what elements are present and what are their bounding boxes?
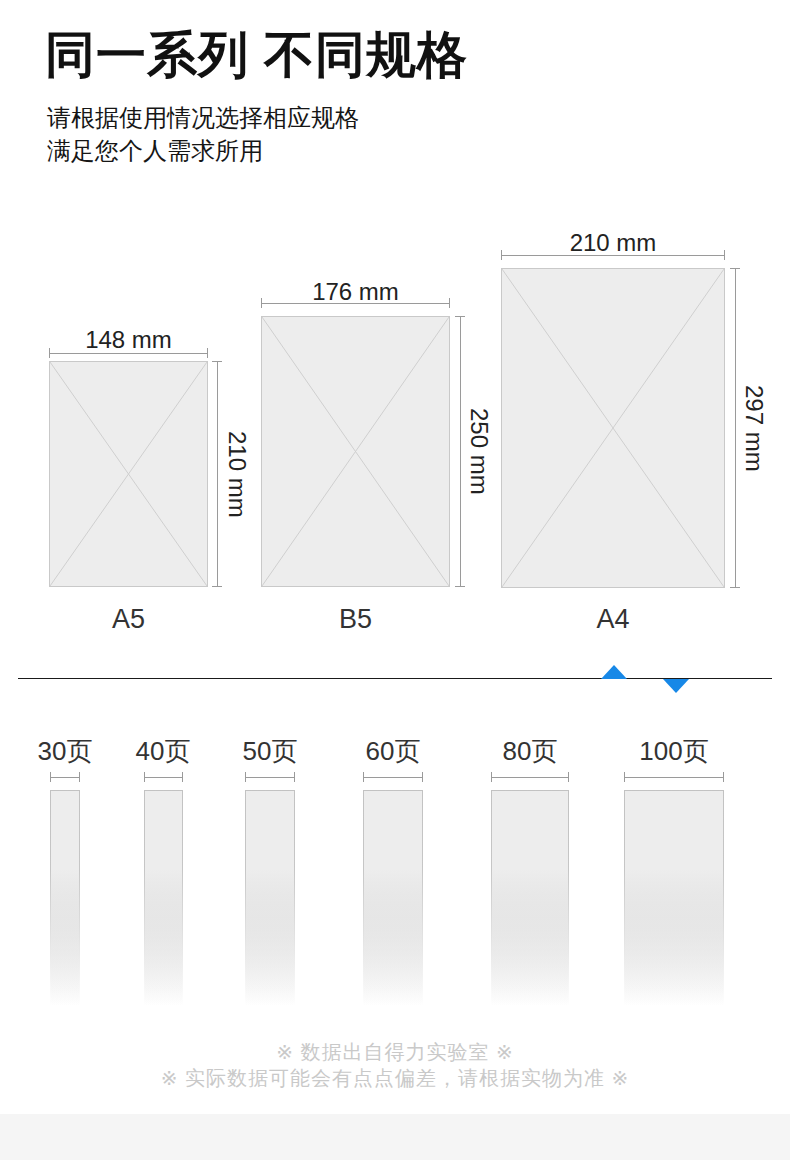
b5-paper-rect (261, 316, 450, 587)
thickness-bar-fill (51, 791, 79, 1015)
b5-height-dimension-label: 250 mm (464, 316, 494, 587)
thickness-bar-80 (491, 790, 569, 1015)
a5-height-dimension-line (212, 361, 222, 587)
page-count-dimension-line-60 (363, 772, 423, 782)
section-divider-line (18, 678, 772, 679)
page-count-dimension-line-30 (50, 772, 80, 782)
b5-size-label: B5 (261, 604, 450, 634)
product-spec-infographic: 同一系列 不同规格 请根据使用情况选择相应规格 满足您个人需求所用 148 mm… (0, 0, 790, 1160)
a5-paper-rect (49, 361, 208, 587)
page-count-label-50: 50页 (210, 736, 330, 766)
footer-note-line-1: ※ 数据出自得力实验室 ※ (0, 1039, 790, 1065)
page-count-label-40: 40页 (103, 736, 223, 766)
thickness-bar-fill (364, 791, 422, 1015)
page-count-label-100: 100页 (614, 736, 734, 766)
b5-width-dimension-line (261, 298, 450, 308)
thickness-bar-60 (363, 790, 423, 1015)
thickness-bar-50 (245, 790, 295, 1015)
page-title: 同一系列 不同规格 (45, 24, 745, 86)
page-count-dimension-line-40 (144, 772, 183, 782)
thickness-bar-fill (246, 791, 294, 1015)
page-subtitle: 请根据使用情况选择相应规格 满足您个人需求所用 (47, 101, 647, 167)
a4-width-dimension-line (501, 250, 725, 260)
bottom-gray-band (0, 1114, 790, 1160)
subtitle-line-2: 满足您个人需求所用 (47, 137, 263, 164)
a4-size-label: A4 (501, 604, 725, 634)
page-count-dimension-line-100 (624, 772, 724, 782)
diagonal-cross (262, 317, 449, 586)
page-count-label-80: 80页 (470, 736, 590, 766)
a5-size-label: A5 (49, 604, 208, 634)
arrow-up-icon (601, 665, 627, 679)
a5-width-dimension-line (49, 348, 208, 358)
thickness-bar-40 (144, 790, 183, 1015)
arrow-down-icon (663, 679, 689, 693)
a4-height-dimension-label: 297 mm (739, 268, 769, 588)
diagonal-cross (50, 362, 207, 586)
footer-note-line-2: ※ 实际数据可能会有点点偏差，请根据实物为准 ※ (0, 1065, 790, 1091)
thickness-bar-100 (624, 790, 724, 1015)
page-count-dimension-line-80 (491, 772, 569, 782)
thickness-bar-fill (145, 791, 182, 1015)
a5-height-dimension-label: 210 mm (222, 361, 252, 587)
a4-paper-rect (501, 268, 725, 588)
thickness-bar-fill (625, 791, 723, 1015)
subtitle-line-1: 请根据使用情况选择相应规格 (47, 104, 359, 131)
diagonal-cross (502, 269, 724, 587)
thickness-bar-fill (492, 791, 568, 1015)
thickness-bar-30 (50, 790, 80, 1015)
page-count-label-60: 60页 (333, 736, 453, 766)
page-count-dimension-line-50 (245, 772, 295, 782)
